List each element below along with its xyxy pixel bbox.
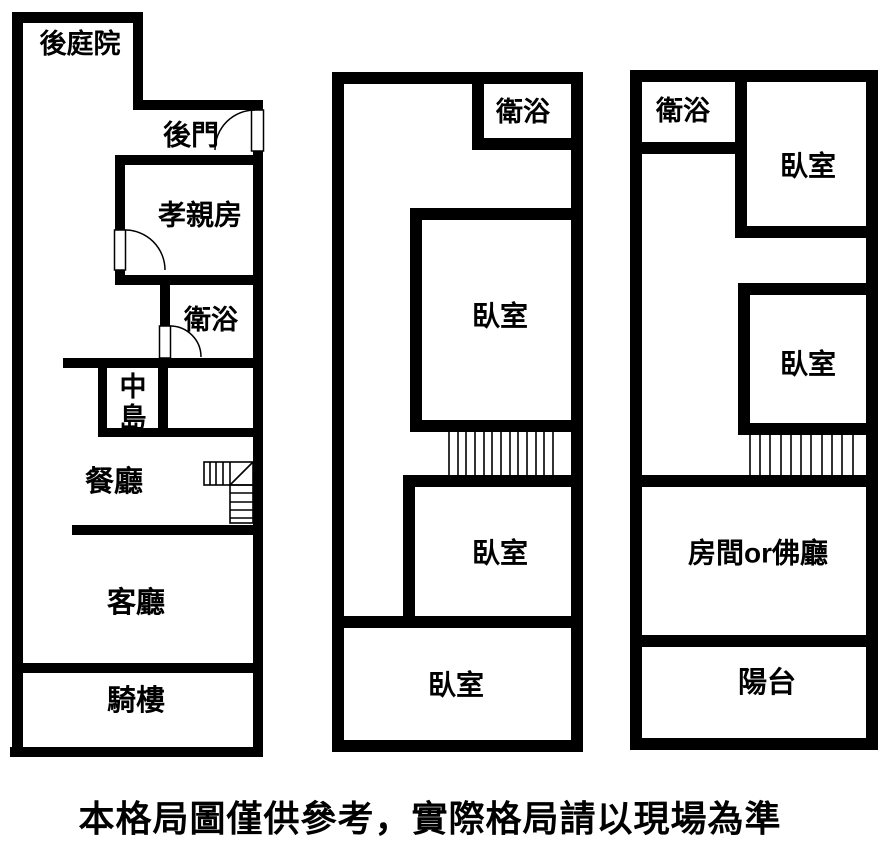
room-label-kitchen-island: 中島 (118, 372, 148, 434)
room-label-bedroom-f3-2: 臥室 (780, 349, 836, 378)
stairs-icon-f3 (750, 435, 853, 475)
floor2-walls (332, 72, 583, 752)
floor3-walls (630, 70, 878, 750)
room-label-bedroom-f2-1: 臥室 (472, 301, 528, 330)
stairs-icon-f1 (204, 462, 253, 523)
room-label-bathroom-f1: 衛浴 (184, 306, 238, 334)
room-label-bathroom-f3: 衛浴 (656, 97, 710, 125)
room-label-room-or-buddha-hall: 房間or佛廳 (688, 538, 828, 567)
floorplan-diagram: 後庭院 後門 孝親房 衛浴 中島 餐廳 客廳 騎樓 衛浴 臥室 臥室 臥室 衛浴… (0, 0, 889, 843)
back-door-icon (215, 110, 264, 151)
disclaimer-caption: 本格局圖僅供參考，實際格局請以現場為準 (78, 790, 781, 842)
room-label-backyard: 後庭院 (40, 30, 121, 58)
room-label-bedroom-f2-3: 臥室 (428, 670, 484, 699)
room-label-bedroom-f2-2: 臥室 (472, 538, 528, 567)
elder-room-door-icon (115, 230, 166, 270)
room-label-arcade: 騎樓 (107, 686, 165, 716)
room-label-dining-room: 餐廳 (85, 467, 143, 497)
room-label-back-door: 後門 (163, 120, 219, 149)
room-label-elder-room: 孝親房 (158, 200, 242, 229)
room-label-living-room: 客廳 (107, 588, 165, 618)
room-label-balcony: 陽台 (738, 668, 796, 698)
room-label-bathroom-f2: 衛浴 (496, 98, 550, 126)
room-label-bedroom-f3-1: 臥室 (780, 151, 836, 180)
stairs-icon-f2 (449, 432, 553, 475)
